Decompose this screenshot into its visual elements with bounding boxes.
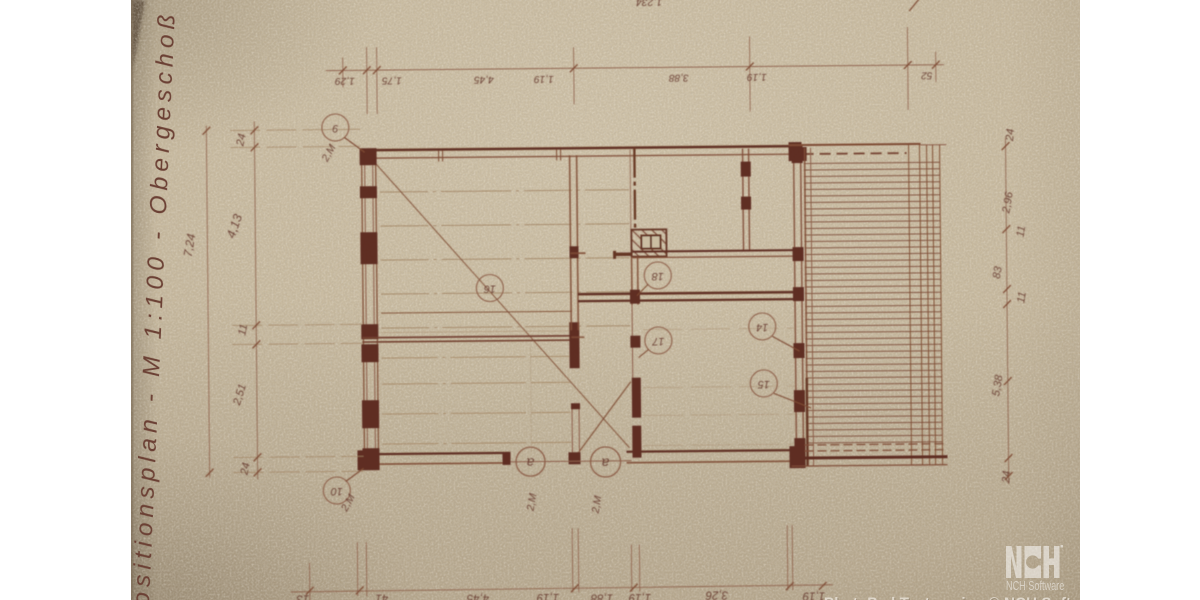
svg-text:11: 11 — [236, 323, 250, 337]
svg-text:4,45: 4,45 — [466, 591, 489, 600]
svg-text:1,19: 1,19 — [802, 589, 825, 600]
svg-text:18: 18 — [652, 270, 664, 282]
svg-text:52: 52 — [921, 69, 933, 80]
svg-text:1,234: 1,234 — [636, 0, 663, 8]
svg-text:1,19: 1,19 — [628, 591, 651, 600]
svg-text:PhotoPad Testversion © NCH Sof: PhotoPad Testversion © NCH Software — [824, 594, 1106, 600]
svg-text:24: 24 — [1000, 470, 1013, 484]
svg-text:1,29: 1,29 — [335, 75, 355, 86]
svg-text:16: 16 — [484, 282, 496, 294]
svg-text:24: 24 — [1004, 128, 1017, 142]
svg-text:4,45: 4,45 — [474, 73, 494, 84]
svg-text:15: 15 — [757, 378, 770, 390]
svg-text:11: 11 — [1015, 291, 1029, 304]
svg-text:14: 14 — [756, 321, 768, 333]
svg-text:1,19: 1,19 — [747, 71, 767, 82]
svg-text:9: 9 — [332, 122, 338, 134]
svg-text:NCH Software: NCH Software — [1006, 580, 1064, 594]
svg-text:3,88: 3,88 — [669, 71, 689, 82]
svg-text:10: 10 — [331, 485, 343, 497]
svg-text:1,88: 1,88 — [590, 591, 613, 600]
svg-text:a: a — [526, 455, 534, 471]
svg-text:1,19: 1,19 — [536, 591, 559, 600]
svg-text:1,75: 1,75 — [382, 74, 402, 85]
svg-text:17: 17 — [651, 335, 664, 347]
svg-text:11: 11 — [1015, 225, 1029, 238]
svg-text:41: 41 — [375, 591, 388, 600]
svg-text:a: a — [601, 456, 609, 472]
svg-text:3,26: 3,26 — [705, 588, 728, 600]
svg-text:1,19: 1,19 — [534, 73, 554, 84]
svg-text:13: 13 — [296, 592, 310, 600]
